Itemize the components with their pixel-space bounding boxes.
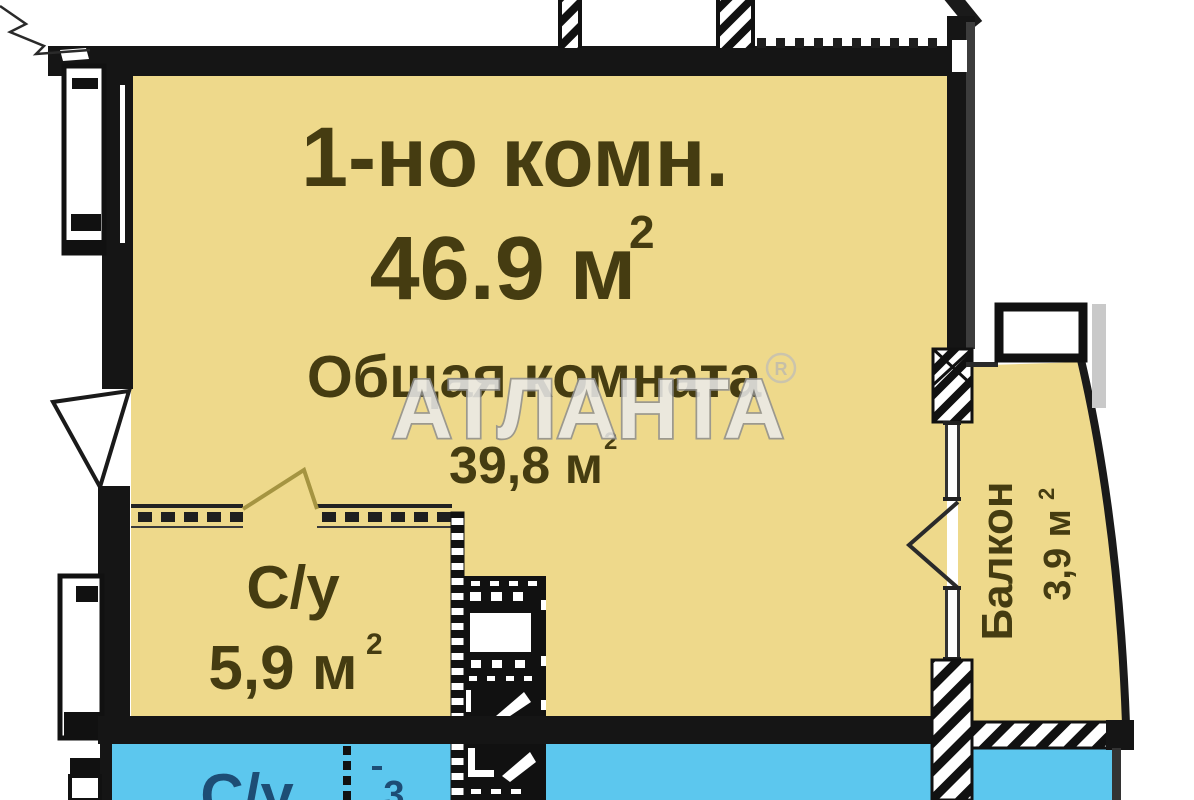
svg-text:1-но комн.: 1-но комн. xyxy=(301,110,728,204)
svg-text:2: 2 xyxy=(1034,488,1059,500)
svg-text:2: 2 xyxy=(366,628,383,661)
svg-text:Балкон: Балкон xyxy=(973,482,1022,641)
svg-text:С/у: С/у xyxy=(200,762,294,800)
svg-text:3: 3 xyxy=(383,774,404,800)
svg-text:3,9 м: 3,9 м xyxy=(1037,509,1079,601)
svg-text:5,9 м: 5,9 м xyxy=(208,634,357,703)
svg-text:46.9 м: 46.9 м xyxy=(370,219,637,319)
svg-text:R: R xyxy=(775,359,788,379)
svg-text:С/у: С/у xyxy=(246,554,340,621)
svg-text:АТЛАНТА: АТЛАНТА xyxy=(392,362,785,456)
svg-text:2: 2 xyxy=(629,206,655,258)
